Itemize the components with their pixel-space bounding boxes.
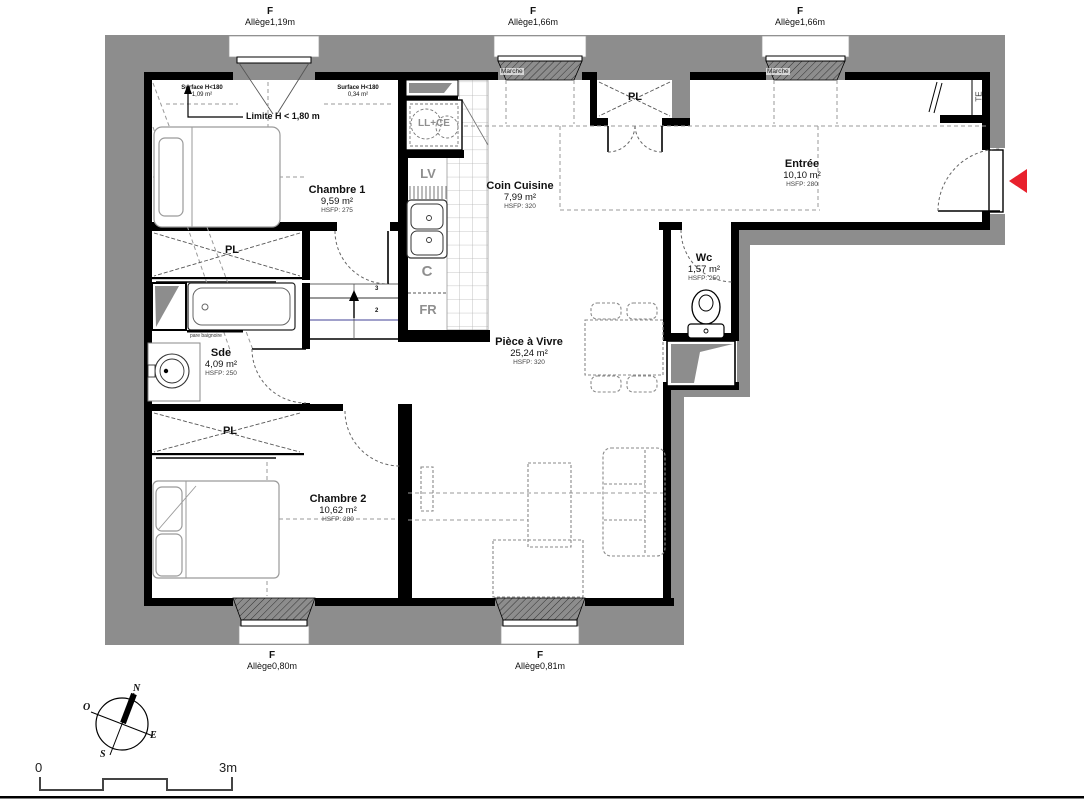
appliance-label-lv: LV xyxy=(420,166,436,181)
room-label-sde: Sde 4,09 m² HSFP: 250 xyxy=(205,347,237,378)
closet-label-pl-entree: PL xyxy=(628,91,642,103)
room-label-piece-a-vivre: Pièce à Vivre 25,24 m² HSFP: 320 xyxy=(495,336,563,367)
appliance-label-fr: FR xyxy=(419,302,436,317)
window-sill-height: Allège1,19m xyxy=(245,17,295,27)
pare-baignoire-label: pare baignoire xyxy=(190,333,222,339)
room-hsfp: HSFP: 250 xyxy=(205,370,237,378)
floor-plan-drawing xyxy=(0,0,1084,800)
entrance-door xyxy=(938,149,1003,212)
duct-wc xyxy=(667,341,735,386)
stair-step-3: 3 xyxy=(375,286,378,292)
radiator xyxy=(421,467,433,511)
room-area: 7,99 m² xyxy=(486,192,553,203)
rug xyxy=(493,540,583,597)
bed-ch2 xyxy=(153,481,279,578)
window-sill-height: Allège1,66m xyxy=(508,17,558,27)
window-type: F xyxy=(515,650,565,661)
limite-annotation: Limite H < 1,80 m xyxy=(246,111,320,121)
room-name: Chambre 2 xyxy=(310,493,367,505)
door-ch2 xyxy=(345,411,400,466)
window-sill-height: Allège0,81m xyxy=(515,661,565,671)
entrance-arrow-icon xyxy=(1009,169,1027,193)
surface-line2: 0,34 m² xyxy=(337,92,379,99)
marche-label-kitchen: Marche xyxy=(500,68,524,75)
room-hsfp: HSFP: 320 xyxy=(495,359,563,367)
surface-line1: Surface H<180 xyxy=(337,85,379,92)
window-type: F xyxy=(245,6,295,17)
floor-plan-canvas: F Allège1,19m F Allège1,66m F Allège1,66… xyxy=(0,0,1084,800)
window-sill-height: Allège0,80m xyxy=(247,661,297,671)
bathtub xyxy=(187,283,295,333)
surface-annotation-1: Surface H<180 1,09 m² xyxy=(181,85,223,99)
room-hsfp: HSFP: 280 xyxy=(783,181,821,189)
shower-duct xyxy=(152,283,186,330)
washbasin xyxy=(148,343,200,401)
toilet-icon xyxy=(688,290,724,338)
stairs xyxy=(310,284,398,339)
appliance-label-ll-ce: LL+CE xyxy=(418,118,450,129)
window-sill-height: Allège1,66m xyxy=(775,17,825,27)
room-label-coin-cuisine: Coin Cuisine 7,99 m² HSFP: 320 xyxy=(486,180,553,211)
compass-s: S xyxy=(100,749,106,760)
door-ch1 xyxy=(335,231,388,284)
compass-o: O xyxy=(83,702,90,713)
room-name: Chambre 1 xyxy=(309,184,366,196)
room-name: Pièce à Vivre xyxy=(495,336,563,348)
window-label-bottom-2: F Allège0,81m xyxy=(515,650,565,671)
room-name: Coin Cuisine xyxy=(486,180,553,192)
scale-zero: 0 xyxy=(35,760,42,775)
stair-step-2: 2 xyxy=(375,308,378,314)
room-area: 1,57 m² xyxy=(688,264,720,275)
room-hsfp: HSFP: 320 xyxy=(486,203,553,211)
room-area: 9,59 m² xyxy=(309,196,366,207)
compass-rose-icon xyxy=(91,693,153,755)
room-area: 10,10 m² xyxy=(783,170,821,181)
room-hsfp: HSFP: 280 xyxy=(310,516,367,524)
bottom-border xyxy=(0,796,1084,799)
compass-n: N xyxy=(133,683,140,694)
room-area: 4,09 m² xyxy=(205,359,237,370)
room-hsfp: HSFP: 275 xyxy=(309,207,366,215)
closet-label-pl1: PL xyxy=(225,244,239,256)
sofa xyxy=(603,448,665,556)
room-label-chambre1: Chambre 1 9,59 m² HSFP: 275 xyxy=(309,184,366,215)
room-hsfp: HSFP: 250 xyxy=(688,275,720,283)
dishrack-hatch xyxy=(410,186,446,199)
window-label-bottom-1: F Allège0,80m xyxy=(247,650,297,671)
marche-label-entree: Marche xyxy=(766,68,790,75)
surface-line2: 1,09 m² xyxy=(181,92,223,99)
window-label-top-1: F Allège1,19m xyxy=(245,6,295,27)
appliance-label-te: TE xyxy=(975,91,984,101)
room-name: Sde xyxy=(205,347,237,359)
room-name: Wc xyxy=(688,252,720,264)
window-type: F xyxy=(508,6,558,17)
window-type: F xyxy=(775,6,825,17)
scale-bar xyxy=(40,777,232,790)
appliance-label-c: C xyxy=(422,263,433,280)
bed-ch1 xyxy=(154,127,280,227)
compass-e: E xyxy=(150,730,157,741)
room-label-wc: Wc 1,57 m² HSFP: 250 xyxy=(688,252,720,283)
closet-label-pl2: PL xyxy=(223,425,237,437)
window-type: F xyxy=(247,650,297,661)
kitchen-sink-icon xyxy=(407,200,447,258)
surface-line1: Surface H<180 xyxy=(181,85,223,92)
coffee-table xyxy=(528,463,571,547)
window-recesses xyxy=(229,36,1006,644)
room-label-entree: Entrée 10,10 m² HSFP: 280 xyxy=(783,158,821,189)
room-label-chambre2: Chambre 2 10,62 m² HSFP: 280 xyxy=(310,493,367,524)
window-label-top-3: F Allège1,66m xyxy=(775,6,825,27)
room-area: 25,24 m² xyxy=(495,348,563,359)
room-area: 10,62 m² xyxy=(310,505,367,516)
dining-table xyxy=(585,303,663,392)
door-sde xyxy=(252,349,306,403)
surface-annotation-2: Surface H<180 0,34 m² xyxy=(337,85,379,99)
window-label-top-2: F Allège1,66m xyxy=(508,6,558,27)
scale-max: 3m xyxy=(219,760,237,775)
room-name: Entrée xyxy=(783,158,821,170)
